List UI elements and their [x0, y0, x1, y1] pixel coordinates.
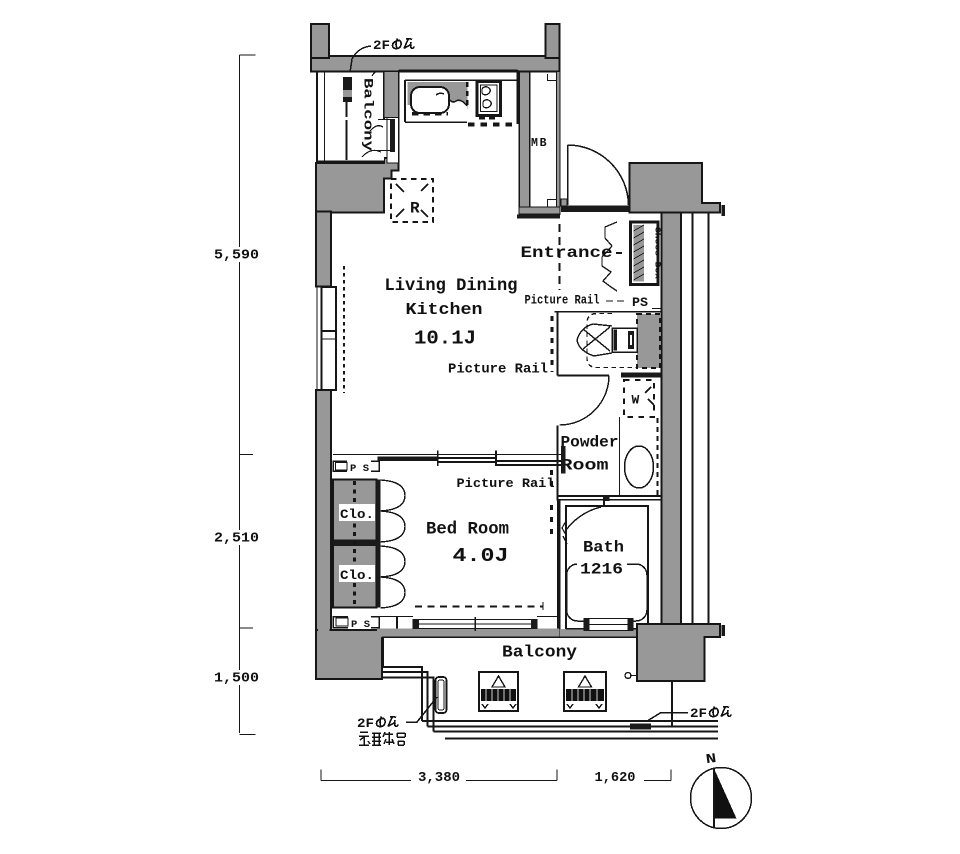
svg-text:1,500: 1,500: [214, 671, 259, 687]
svg-text:Shoes Box: Shoes Box: [653, 227, 661, 280]
svg-text:Bed Room: Bed Room: [426, 520, 509, 540]
svg-text:Picture Rail: Picture Rail: [448, 363, 548, 378]
svg-text:1216: 1216: [580, 561, 623, 579]
svg-text:2,510: 2,510: [214, 531, 259, 547]
svg-text:Picture Rail: Picture Rail: [525, 294, 600, 308]
svg-text:1,620: 1,620: [595, 770, 636, 786]
svg-text:N: N: [705, 752, 717, 768]
svg-text:Clo.: Clo.: [340, 507, 374, 522]
svg-text:4.0J: 4.0J: [453, 545, 509, 567]
svg-text:2F: 2F: [357, 716, 374, 731]
svg-text:Balcony: Balcony: [361, 78, 375, 152]
svg-text:5,590: 5,590: [214, 248, 259, 264]
svg-text:Powder: Powder: [561, 434, 619, 452]
svg-text:MB: MB: [531, 137, 547, 150]
svg-text:PS: PS: [632, 296, 649, 310]
svg-text:2F: 2F: [373, 38, 390, 53]
svg-text:W: W: [632, 393, 640, 408]
svg-text:2F: 2F: [690, 706, 707, 721]
svg-text:10.1J: 10.1J: [414, 328, 476, 350]
svg-text:Kitchen: Kitchen: [406, 301, 483, 320]
svg-text:Balcony: Balcony: [502, 644, 577, 663]
svg-text:Room: Room: [561, 457, 609, 475]
svg-text:Picture Rail: Picture Rail: [457, 476, 555, 491]
svg-text:Living Dining: Living Dining: [385, 276, 518, 296]
svg-text:Entrance: Entrance: [521, 244, 613, 262]
svg-text:Clo.: Clo.: [340, 568, 374, 583]
svg-text:3,380: 3,380: [418, 770, 460, 786]
svg-text:Bath: Bath: [583, 539, 624, 557]
svg-text:R: R: [410, 200, 420, 218]
